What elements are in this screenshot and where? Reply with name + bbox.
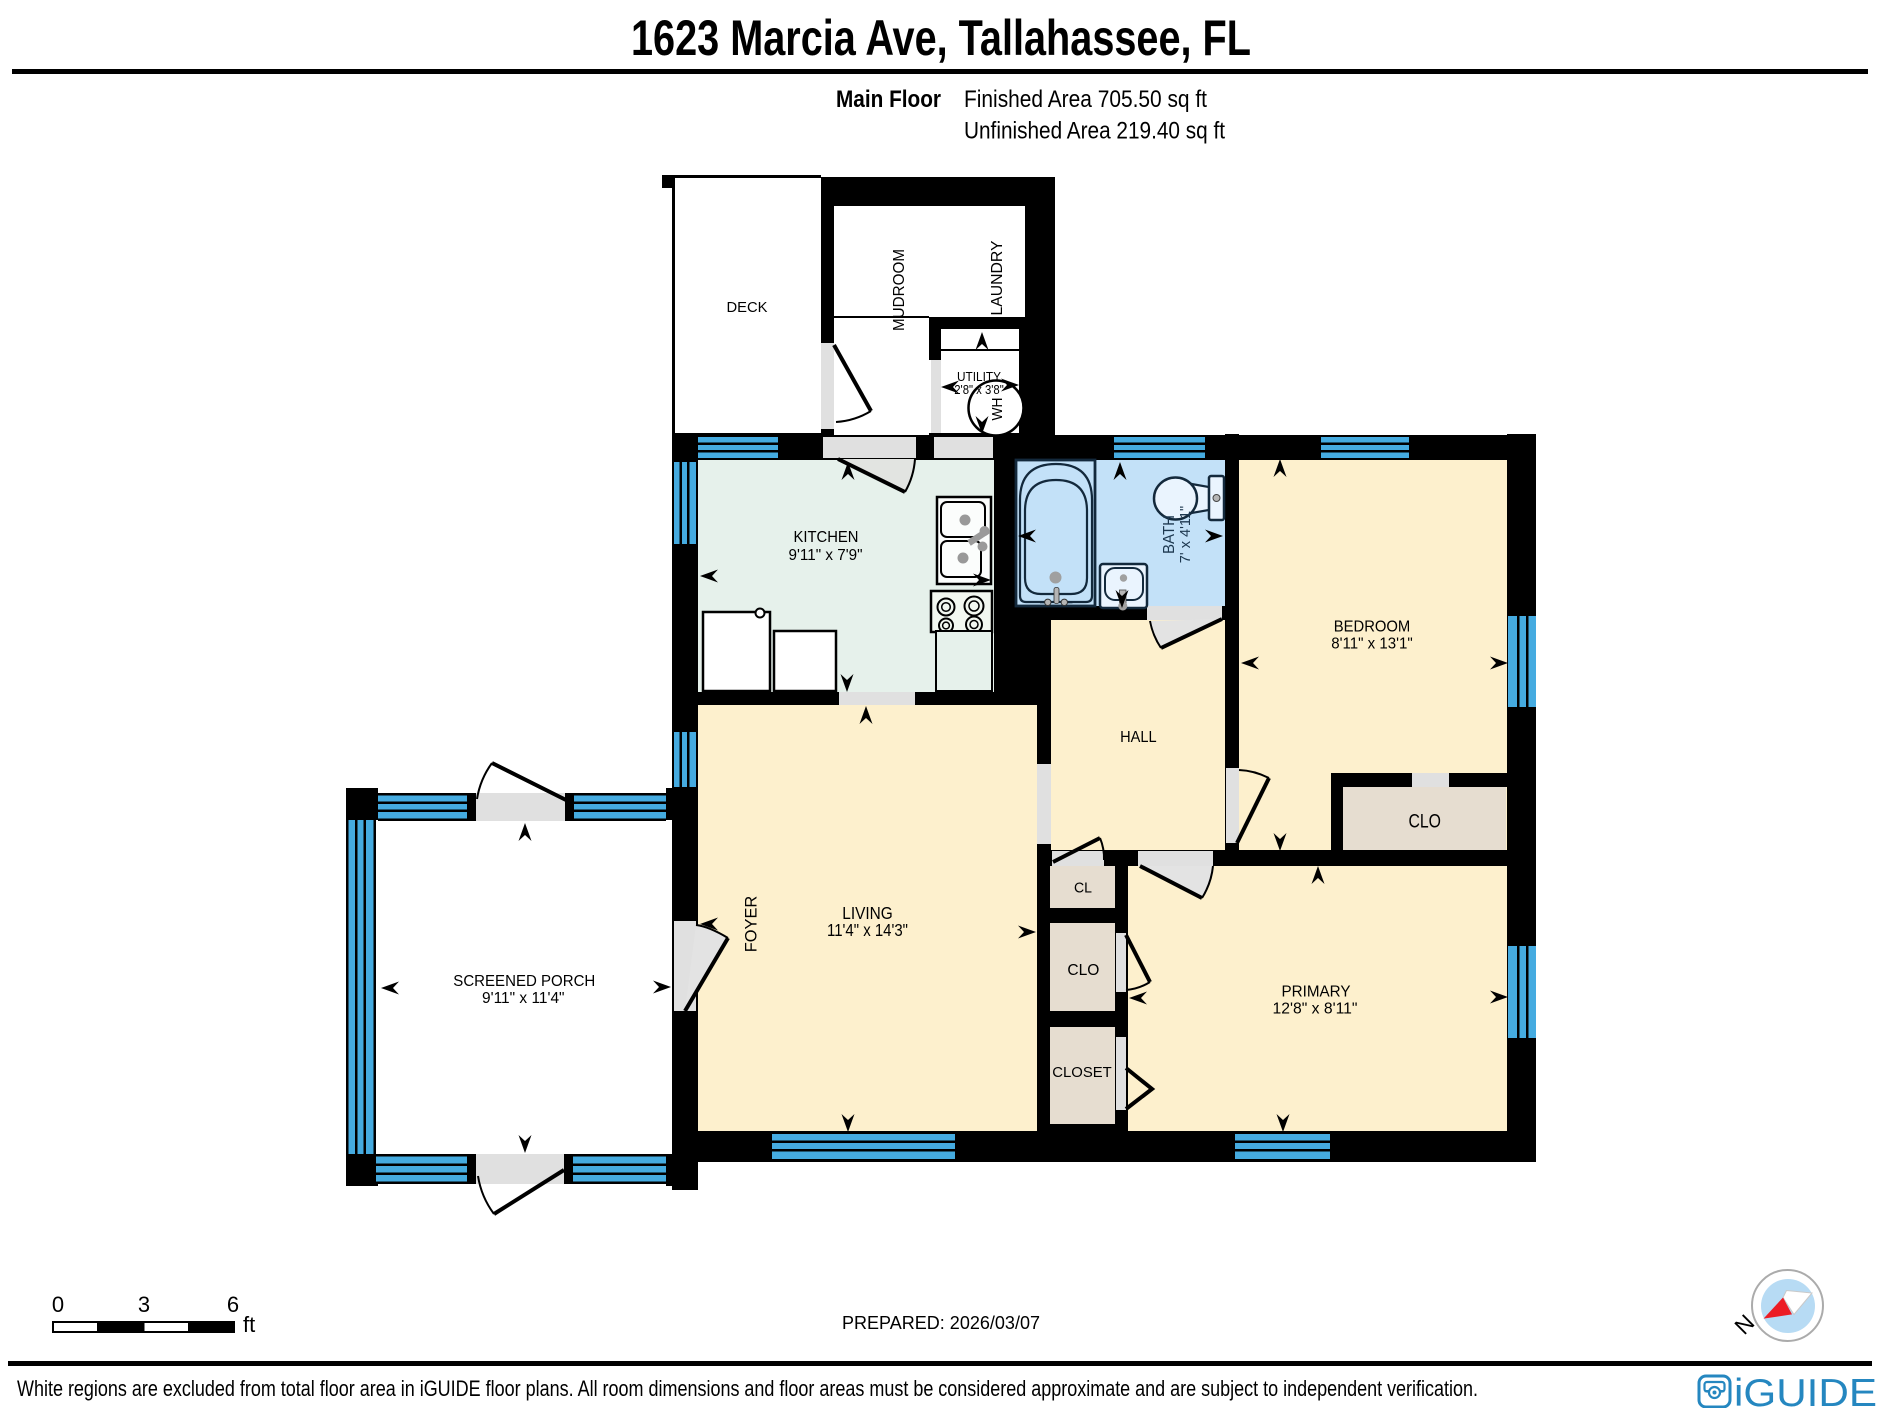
svg-text:CLO: CLO [1067, 962, 1099, 979]
svg-text:1623 Marcia Ave, Tallahassee,: 1623 Marcia Ave, Tallahassee, FL [631, 10, 1251, 66]
svg-text:BATH: BATH [1161, 515, 1178, 554]
svg-text:12'8" x 8'11": 12'8" x 8'11" [1273, 1001, 1358, 1018]
svg-text:11'4" x 14'3": 11'4" x 14'3" [827, 920, 908, 940]
svg-text:8'11" x 13'1": 8'11" x 13'1" [1331, 636, 1413, 653]
svg-text:SCREENED PORCH: SCREENED PORCH [453, 973, 595, 990]
svg-text:HALL: HALL [1120, 729, 1157, 746]
svg-text:DECK: DECK [727, 299, 768, 316]
svg-text:ft: ft [243, 1312, 255, 1337]
svg-text:Finished Area 705.50 sq ft: Finished Area 705.50 sq ft [964, 86, 1207, 113]
svg-text:3: 3 [138, 1292, 150, 1317]
svg-text:7' x 4'11": 7' x 4'11" [1177, 506, 1194, 564]
svg-text:BEDROOM: BEDROOM [1334, 619, 1411, 636]
svg-text:6: 6 [227, 1292, 239, 1317]
svg-text:2'8" x 3'8": 2'8" x 3'8" [954, 383, 1004, 397]
svg-text:CLO: CLO [1408, 812, 1441, 833]
svg-text:Main Floor: Main Floor [836, 86, 941, 113]
svg-text:White regions are excluded fro: White regions are excluded from total fl… [17, 1376, 1478, 1401]
svg-text:9'11" x 11'4": 9'11" x 11'4" [482, 990, 565, 1007]
svg-text:PRIMARY: PRIMARY [1282, 984, 1351, 1001]
svg-text:Unfinished Area 219.40 sq ft: Unfinished Area 219.40 sq ft [964, 118, 1225, 145]
svg-text:CLOSET: CLOSET [1052, 1064, 1112, 1081]
svg-text:PREPARED: 2026/03/07: PREPARED: 2026/03/07 [842, 1312, 1040, 1333]
svg-text:LAUNDRY: LAUNDRY [989, 240, 1006, 315]
svg-text:0: 0 [52, 1292, 64, 1317]
svg-text:MUDROOM: MUDROOM [891, 249, 908, 331]
svg-text:9'11" x 7'9": 9'11" x 7'9" [789, 547, 863, 564]
svg-text:CL: CL [1074, 881, 1092, 897]
svg-text:WH: WH [989, 398, 1006, 421]
svg-text:iGUIDE: iGUIDE [1734, 1372, 1877, 1408]
svg-text:KITCHEN: KITCHEN [794, 529, 859, 546]
svg-text:FOYER: FOYER [742, 896, 761, 953]
svg-text:UTILITY: UTILITY [957, 370, 1002, 384]
